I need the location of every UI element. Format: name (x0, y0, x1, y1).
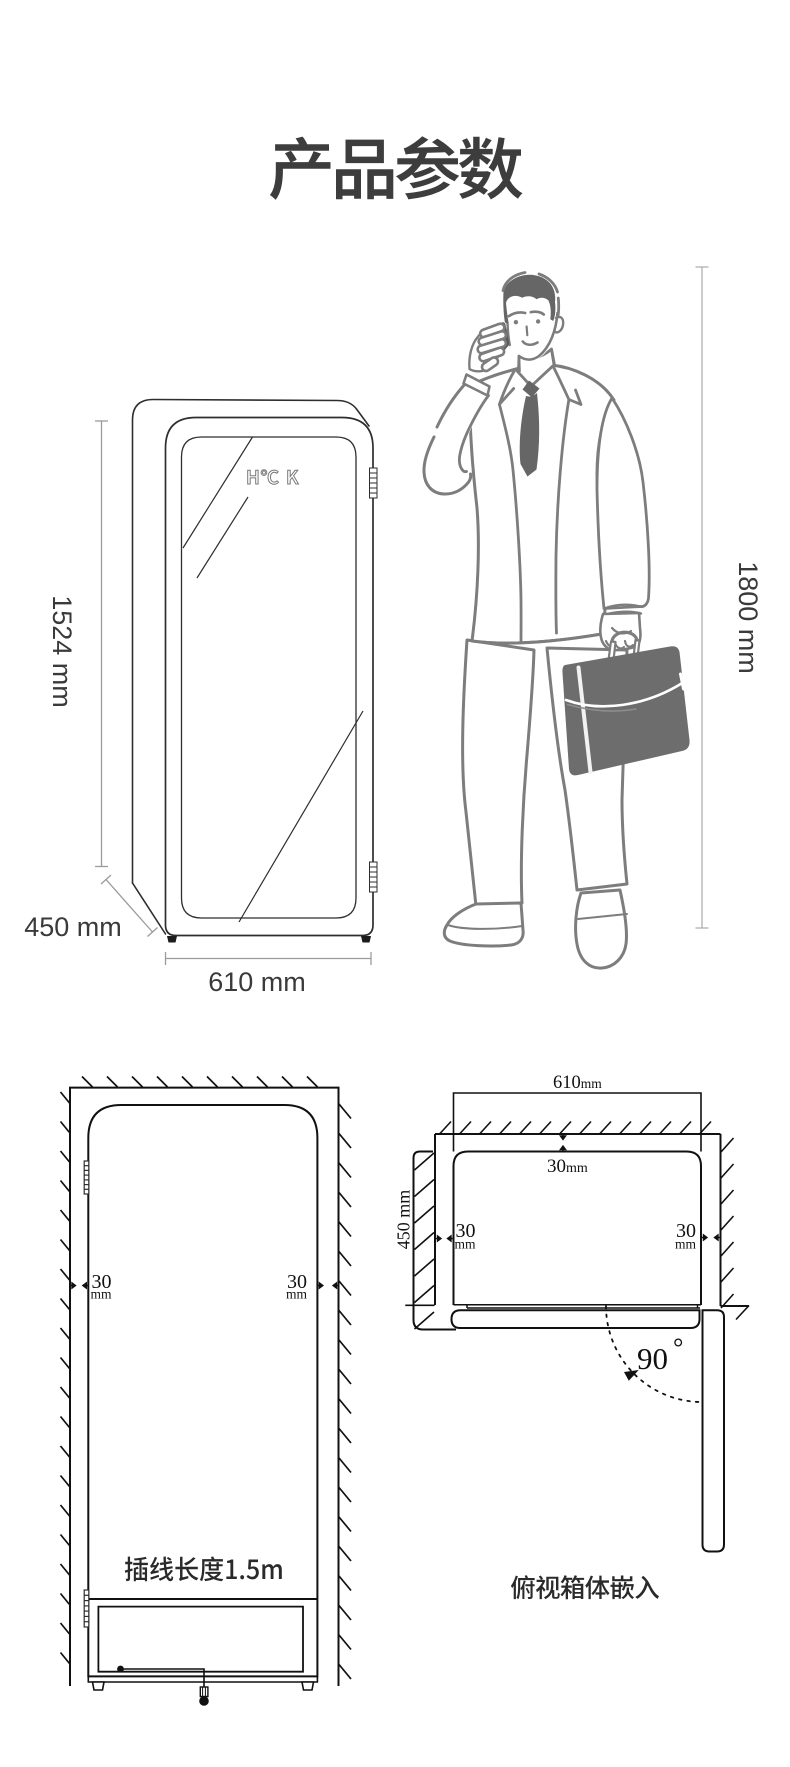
svg-text:450 mm: 450 mm (24, 912, 122, 942)
svg-text:610 mm: 610 mm (208, 967, 306, 997)
svg-text:1524 mm: 1524 mm (47, 595, 77, 708)
svg-text:450 mm: 450 mm (394, 1190, 414, 1250)
svg-text:1800 mm: 1800 mm (733, 561, 763, 674)
svg-text:mm: mm (675, 1237, 697, 1252)
svg-text:30mm: 30mm (547, 1156, 588, 1177)
svg-text:mm: mm (286, 1287, 308, 1302)
svg-text:°: ° (673, 1333, 683, 1362)
svg-text:610mm: 610mm (553, 1073, 602, 1093)
svg-text:mm: mm (90, 1287, 112, 1302)
svg-text:90: 90 (637, 1341, 668, 1376)
svg-text:mm: mm (454, 1237, 476, 1252)
